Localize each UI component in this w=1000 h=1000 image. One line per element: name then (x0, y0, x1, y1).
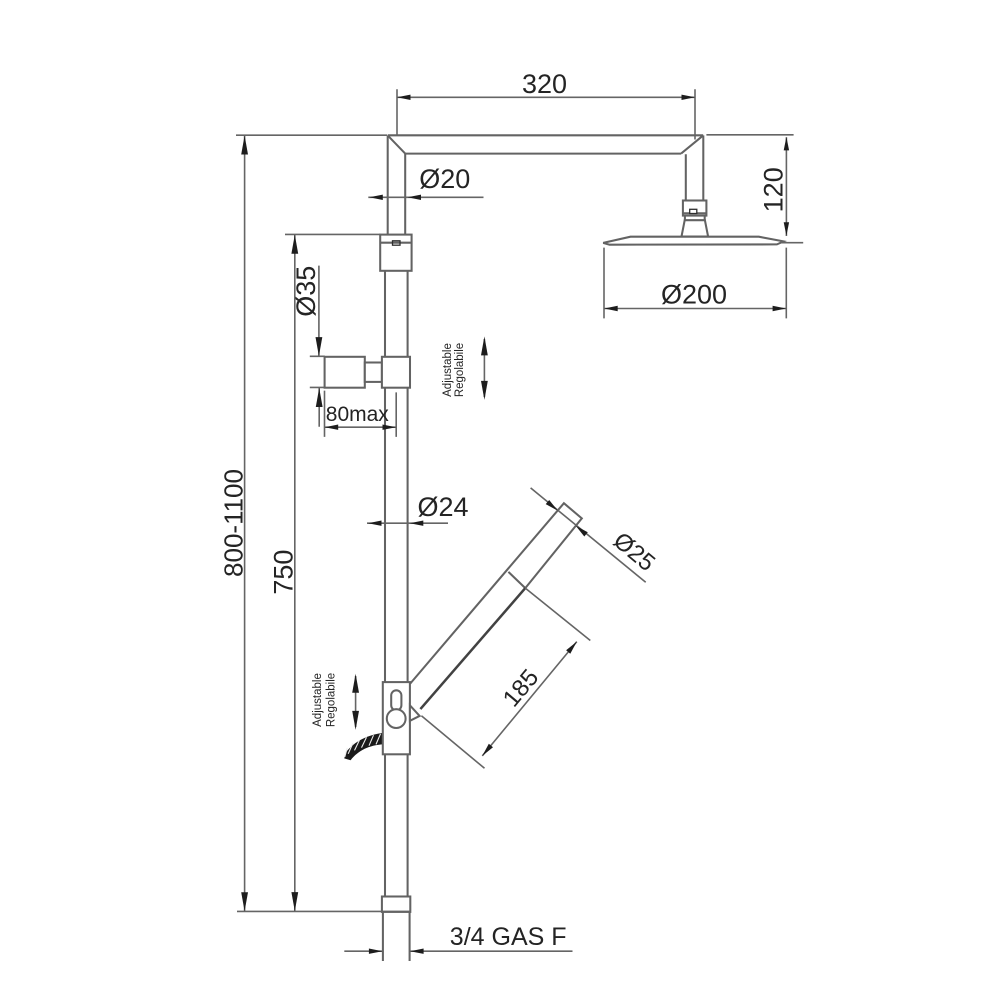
svg-text:Ø25: Ø25 (608, 527, 660, 577)
svg-text:185: 185 (498, 664, 544, 712)
svg-text:Ø200: Ø200 (661, 280, 727, 310)
svg-text:120: 120 (758, 167, 788, 212)
svg-text:Regolabile: Regolabile (454, 343, 466, 397)
svg-text:Ø20: Ø20 (419, 164, 470, 194)
svg-text:Adjustable: Adjustable (442, 343, 454, 397)
svg-text:3/4 GAS F: 3/4 GAS F (450, 923, 567, 951)
svg-text:Ø24: Ø24 (417, 492, 468, 522)
svg-text:80max: 80max (326, 403, 390, 426)
svg-text:Regolabile: Regolabile (325, 673, 337, 727)
svg-text:Adjustable: Adjustable (312, 673, 324, 727)
svg-text:320: 320 (522, 69, 567, 99)
svg-text:Ø35: Ø35 (291, 266, 321, 317)
svg-text:750: 750 (269, 550, 299, 595)
svg-text:800-1100: 800-1100 (218, 469, 248, 577)
